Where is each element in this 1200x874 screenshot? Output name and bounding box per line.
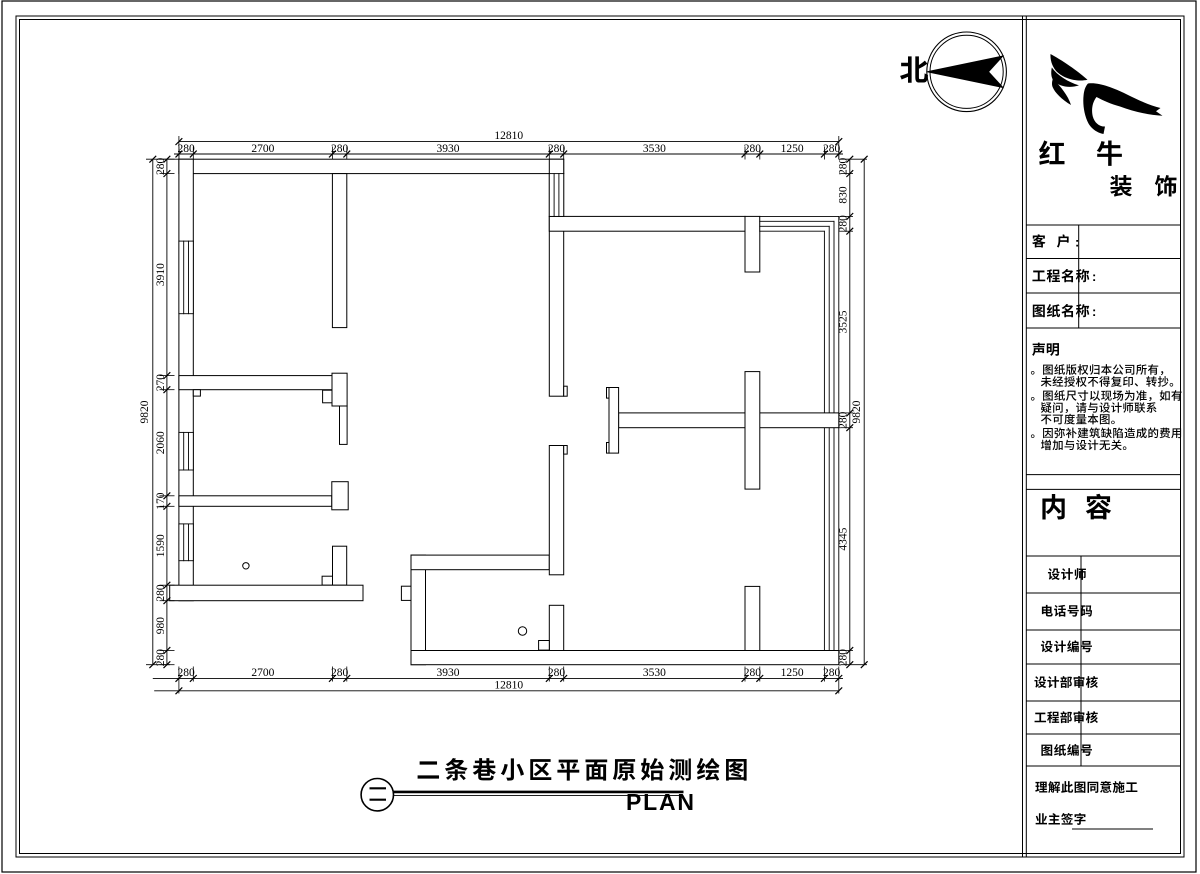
svg-text:3910: 3910: [155, 263, 167, 286]
svg-text:2700: 2700: [251, 667, 274, 679]
svg-text:1250: 1250: [781, 667, 804, 679]
svg-text:9820: 9820: [139, 400, 151, 423]
svg-text:980: 980: [155, 617, 167, 635]
svg-text:9820: 9820: [851, 400, 863, 423]
svg-text:3530: 3530: [643, 143, 666, 155]
svg-text:2060: 2060: [155, 431, 167, 454]
svg-text:3525: 3525: [838, 310, 850, 333]
svg-text:280: 280: [744, 667, 762, 679]
svg-text::: :: [1092, 269, 1096, 284]
svg-text:1590: 1590: [155, 534, 167, 557]
svg-text:170: 170: [155, 492, 167, 510]
svg-text:280: 280: [823, 143, 841, 155]
svg-text:12810: 12810: [494, 679, 523, 691]
svg-text:280: 280: [155, 584, 167, 602]
svg-text:280: 280: [744, 143, 762, 155]
svg-text::: :: [1092, 304, 1096, 319]
svg-text:280: 280: [177, 143, 195, 155]
svg-text:3930: 3930: [437, 143, 460, 155]
svg-text:280: 280: [838, 215, 850, 233]
svg-text:1250: 1250: [781, 143, 804, 155]
svg-text::: :: [1075, 234, 1079, 249]
svg-text:280: 280: [838, 649, 850, 667]
svg-text:280: 280: [548, 667, 566, 679]
svg-text:3530: 3530: [643, 667, 666, 679]
svg-text:PLAN: PLAN: [626, 789, 696, 815]
svg-text:280: 280: [155, 158, 167, 176]
svg-text:270: 270: [155, 374, 167, 392]
svg-text:280: 280: [155, 649, 167, 667]
svg-text:280: 280: [823, 667, 841, 679]
svg-text:280: 280: [838, 411, 850, 429]
svg-text:3930: 3930: [437, 667, 460, 679]
svg-text:4345: 4345: [838, 527, 850, 550]
svg-text:280: 280: [331, 143, 349, 155]
svg-text:280: 280: [331, 667, 349, 679]
svg-text:280: 280: [548, 143, 566, 155]
svg-text:2700: 2700: [251, 143, 274, 155]
svg-text:280: 280: [838, 158, 850, 176]
svg-text:12810: 12810: [494, 130, 523, 142]
svg-text:830: 830: [838, 186, 850, 204]
svg-text:280: 280: [177, 667, 195, 679]
